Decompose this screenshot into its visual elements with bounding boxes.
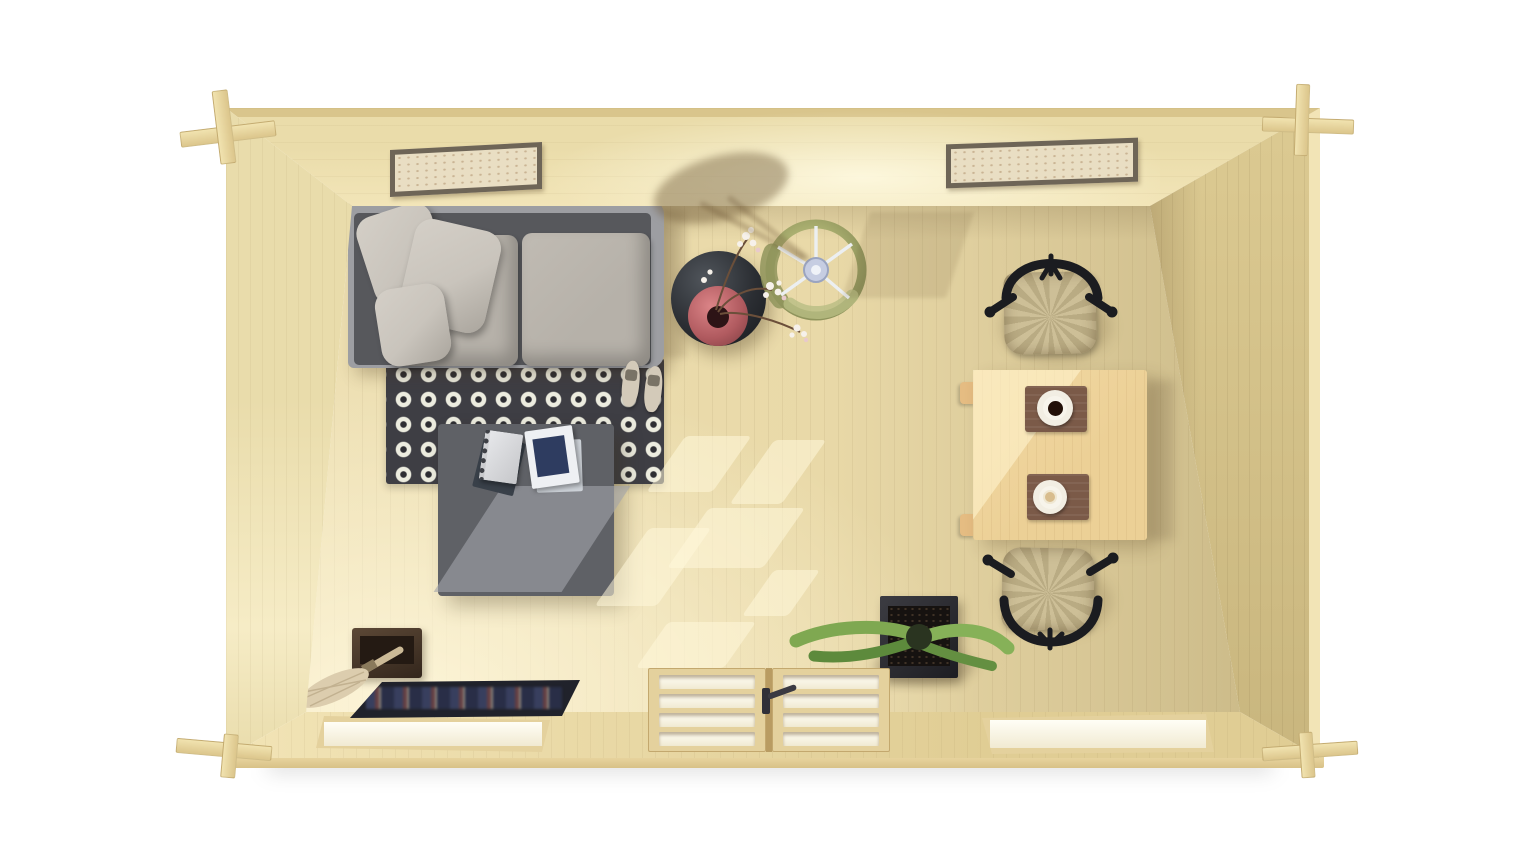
- front-window-right: [982, 714, 1214, 754]
- corner-joint-bottom-left-v: [220, 733, 239, 778]
- door-leaf-right: [772, 668, 890, 752]
- framed-picture-right: [946, 138, 1138, 189]
- succulent-planter: [880, 596, 958, 678]
- coffee-ottoman: [438, 424, 614, 596]
- cabin-top-view: [0, 0, 1536, 864]
- chair-seat-top: [1003, 271, 1096, 355]
- double-glazed-door: [648, 668, 890, 752]
- dining-table: [973, 370, 1147, 540]
- latte-foam: [1043, 490, 1057, 504]
- door-pane: [783, 732, 879, 746]
- bed-cushion-right: [522, 233, 650, 366]
- planter-soil: [888, 606, 950, 666]
- doormat: [350, 680, 582, 718]
- cup: [1039, 486, 1062, 509]
- front-window-left: [316, 716, 550, 752]
- cup: [1043, 396, 1067, 420]
- doormat-print: [366, 687, 562, 709]
- black-coffee: [1048, 401, 1063, 416]
- sandals: [620, 360, 667, 414]
- framed-picture-left: [390, 142, 542, 197]
- vase-opening: [707, 306, 729, 328]
- spiral-notebook: [479, 430, 524, 485]
- corner-joint-top-right-v: [1294, 84, 1311, 156]
- storage-box: [352, 628, 422, 678]
- door-pane: [659, 732, 755, 746]
- door-leaf-left: [648, 668, 766, 752]
- storage-box-opening: [360, 636, 414, 664]
- sandal-right: [642, 365, 664, 413]
- sandal-strap: [647, 374, 660, 386]
- sandal-strap: [625, 369, 638, 381]
- sandal-left: [620, 360, 642, 408]
- chair-seat-bottom: [1001, 547, 1094, 631]
- latte-cup: [1033, 480, 1067, 514]
- door-pane: [659, 675, 755, 689]
- coffee-cup: [1037, 390, 1073, 426]
- door-pane: [783, 694, 879, 708]
- bed-pillow-3: [372, 281, 453, 369]
- door-handle-plate: [762, 688, 770, 714]
- sun-patch-on-ottoman: [434, 486, 631, 592]
- magazine-top: [524, 425, 580, 489]
- door-pane: [659, 694, 755, 708]
- door-pane: [659, 713, 755, 727]
- door-pane: [783, 675, 879, 689]
- sofa-bed: [348, 200, 664, 368]
- magazine-cover-art: [532, 435, 569, 477]
- door-pane: [783, 713, 879, 727]
- window-glass: [990, 720, 1206, 748]
- window-glass: [324, 722, 542, 746]
